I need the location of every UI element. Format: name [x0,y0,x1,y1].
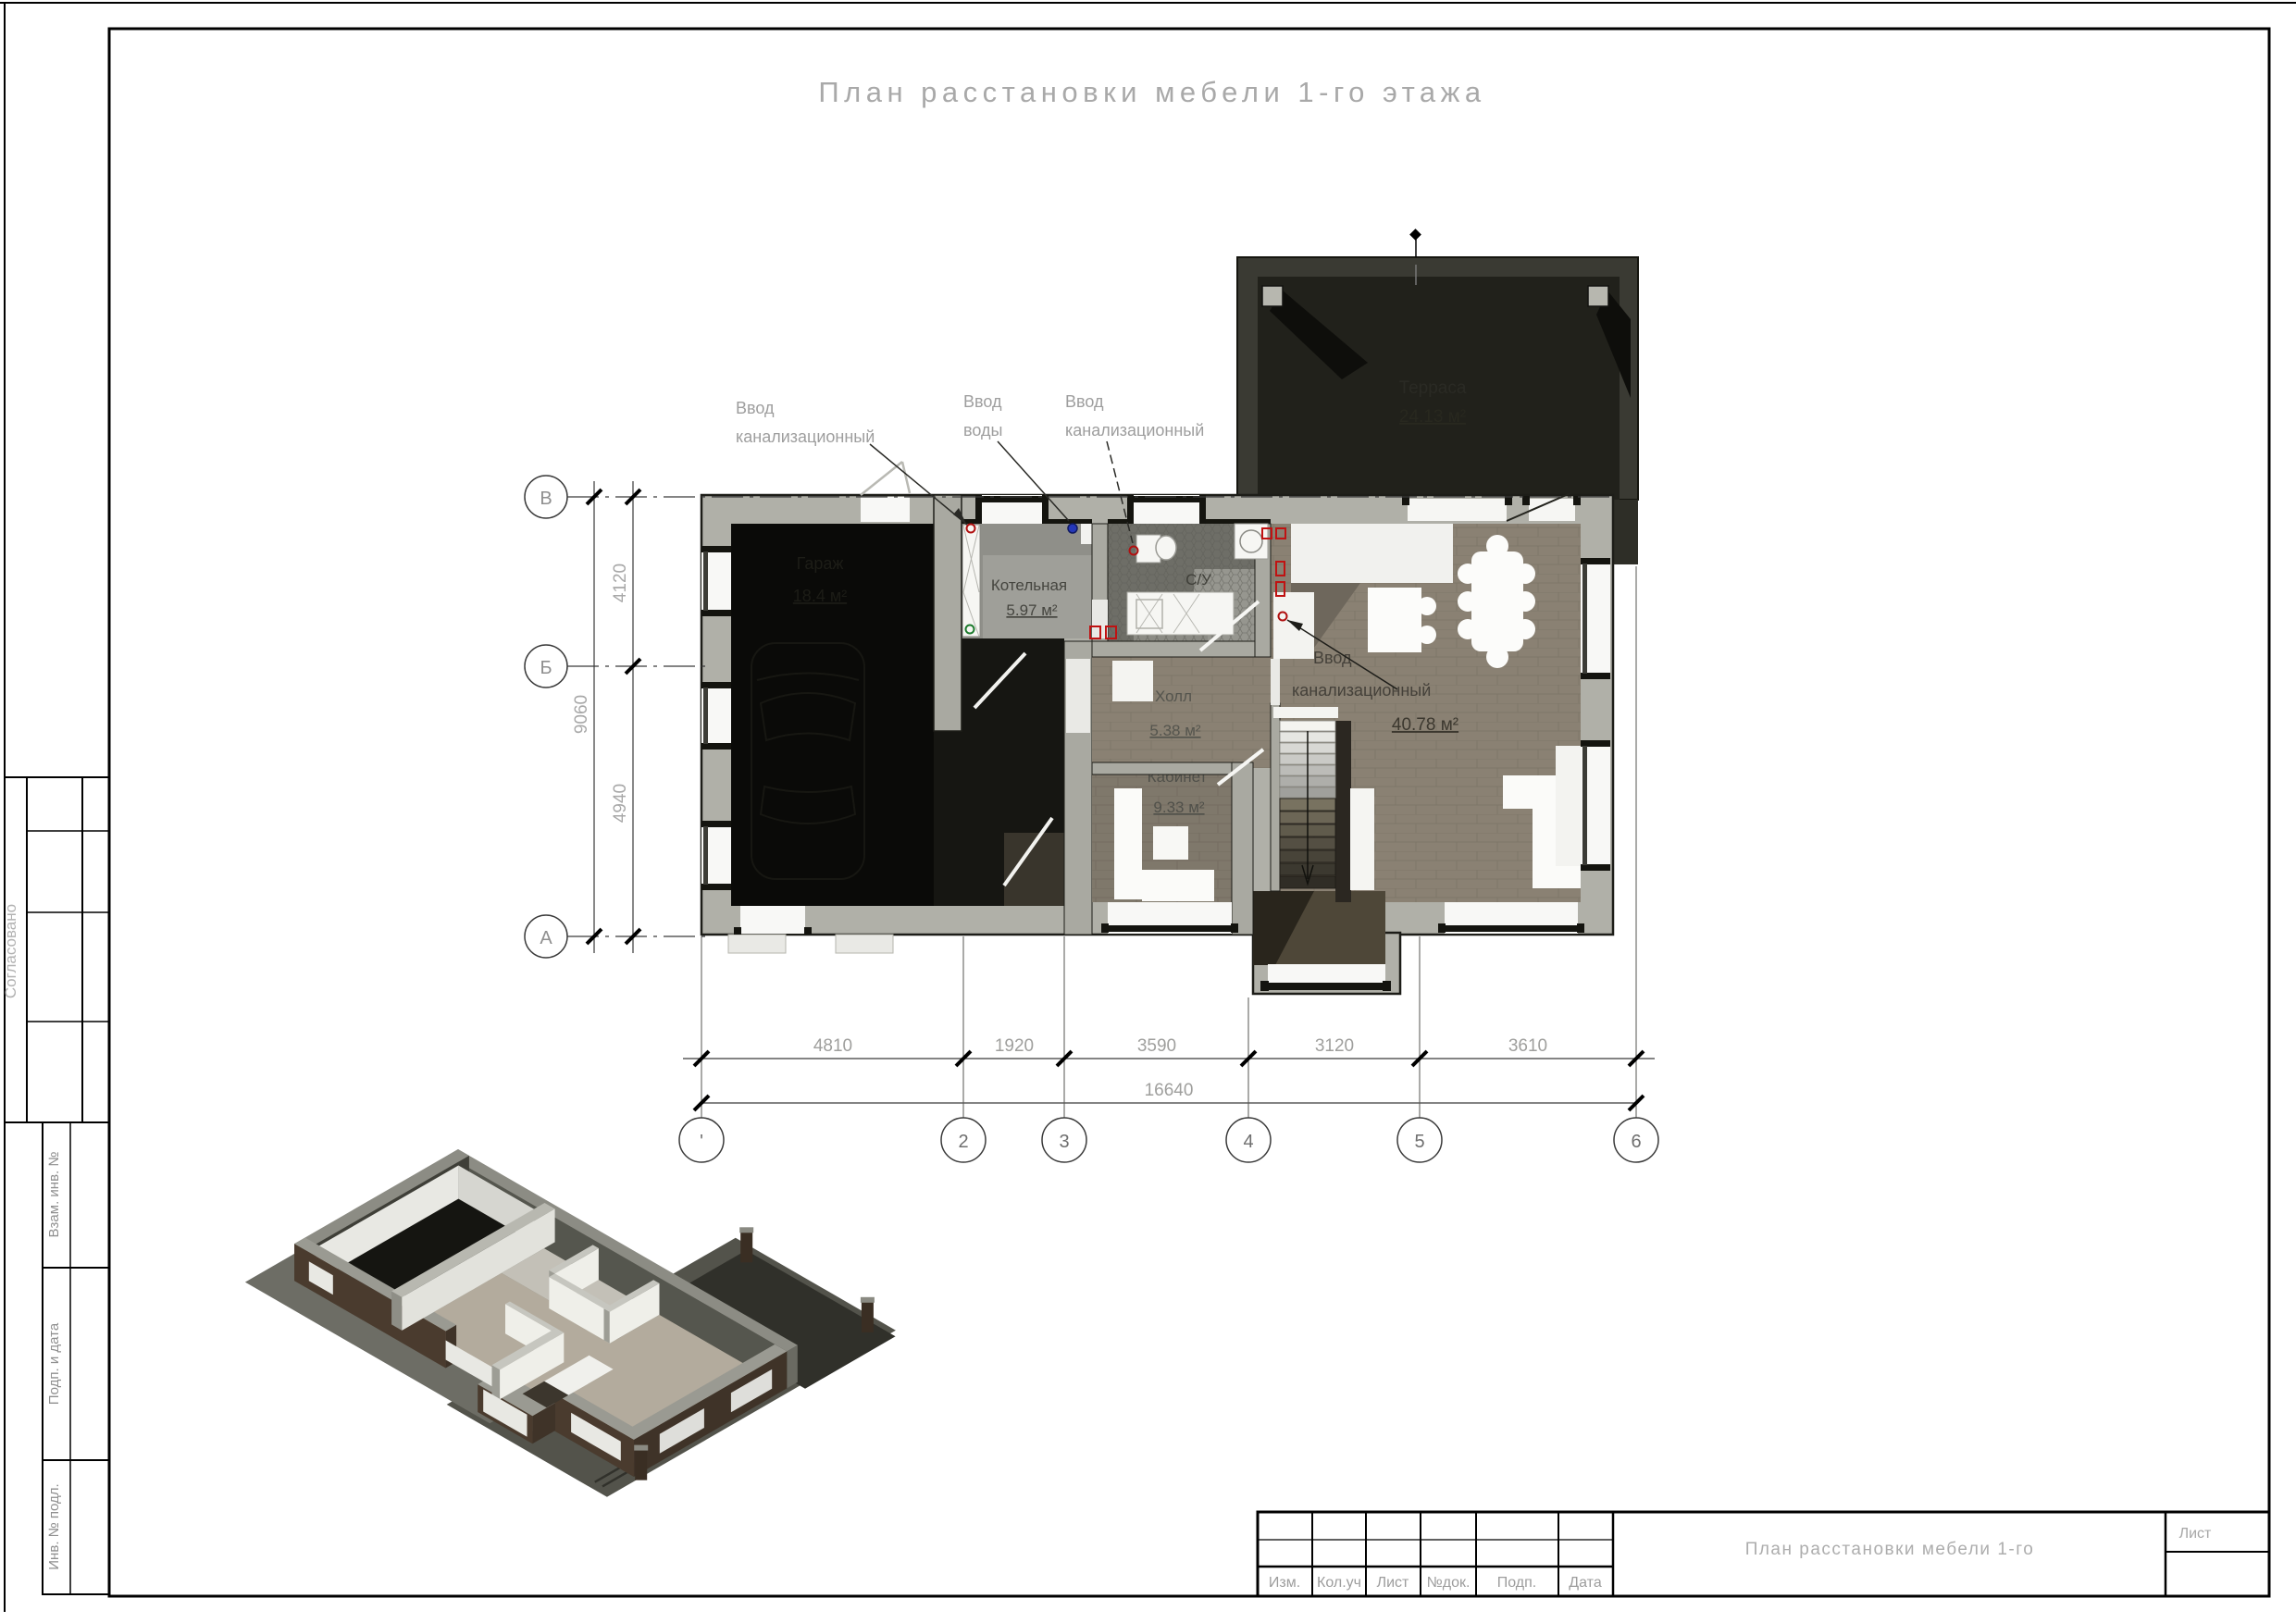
svg-text:Ввод: Ввод [736,399,775,417]
svg-text:': ' [700,1132,703,1152]
svg-text:Котельная: Котельная [991,576,1067,594]
svg-text:Инв. № подл.: Инв. № подл. [46,1483,62,1569]
svg-text:В: В [540,489,552,509]
svg-text:Холл: Холл [1155,688,1192,705]
svg-text:5.38 м²: 5.38 м² [1149,722,1200,739]
svg-text:9.33 м²: 9.33 м² [1153,799,1204,816]
svg-text:Взам. инв. №: Взам. инв. № [46,1152,62,1238]
svg-text:1920: 1920 [995,1036,1034,1056]
svg-text:канализационный: канализационный [736,427,875,446]
svg-text:Лист: Лист [2179,1526,2212,1542]
svg-text:16640: 16640 [1145,1081,1194,1100]
svg-text:18.4 м²: 18.4 м² [793,587,847,605]
svg-text:4120: 4120 [611,564,630,602]
svg-text:Б: Б [540,658,552,678]
svg-text:5.97 м²: 5.97 м² [1006,601,1057,619]
svg-text:4940: 4940 [611,784,630,823]
svg-text:А: А [540,928,552,948]
svg-text:3120: 3120 [1315,1036,1354,1056]
svg-text:Согласовано: Согласовано [2,904,19,998]
svg-text:№док.: №док. [1427,1575,1471,1591]
svg-text:3: 3 [1059,1132,1069,1152]
svg-text:40.78 м²: 40.78 м² [1392,715,1458,735]
svg-text:Ввод: Ввод [1065,392,1104,411]
svg-text:Гараж: Гараж [797,554,844,573]
svg-text:План расстановки мебели 1-го: План расстановки мебели 1-го [1745,1540,2035,1559]
svg-text:9060: 9060 [572,695,591,734]
svg-text:План расстановки мебели 1-го э: План расстановки мебели 1-го этажа [818,76,1485,108]
svg-text:Подп.: Подп. [1497,1575,1537,1591]
svg-text:3610: 3610 [1508,1036,1547,1056]
svg-text:4: 4 [1243,1132,1253,1152]
svg-text:Терраса: Терраса [1399,378,1467,398]
svg-text:24.13 м²: 24.13 м² [1399,407,1466,427]
svg-text:С/У: С/У [1185,571,1211,588]
svg-text:Дата: Дата [1569,1575,1602,1591]
svg-text:воды: воды [963,421,1002,440]
svg-text:Лист: Лист [1377,1575,1409,1591]
svg-text:канализационный: канализационный [1065,421,1204,440]
svg-text:4810: 4810 [813,1036,852,1056]
svg-text:5: 5 [1414,1132,1424,1152]
svg-text:Кол.уч: Кол.уч [1317,1575,1361,1591]
svg-text:Изм.: Изм. [1269,1575,1300,1591]
svg-text:Подп. и дата: Подп. и дата [46,1322,62,1405]
svg-text:2: 2 [958,1132,968,1152]
svg-text:6: 6 [1631,1132,1641,1152]
svg-text:канализационный: канализационный [1292,681,1431,700]
svg-text:Ввод: Ввод [963,392,1002,411]
svg-text:3590: 3590 [1137,1036,1176,1056]
